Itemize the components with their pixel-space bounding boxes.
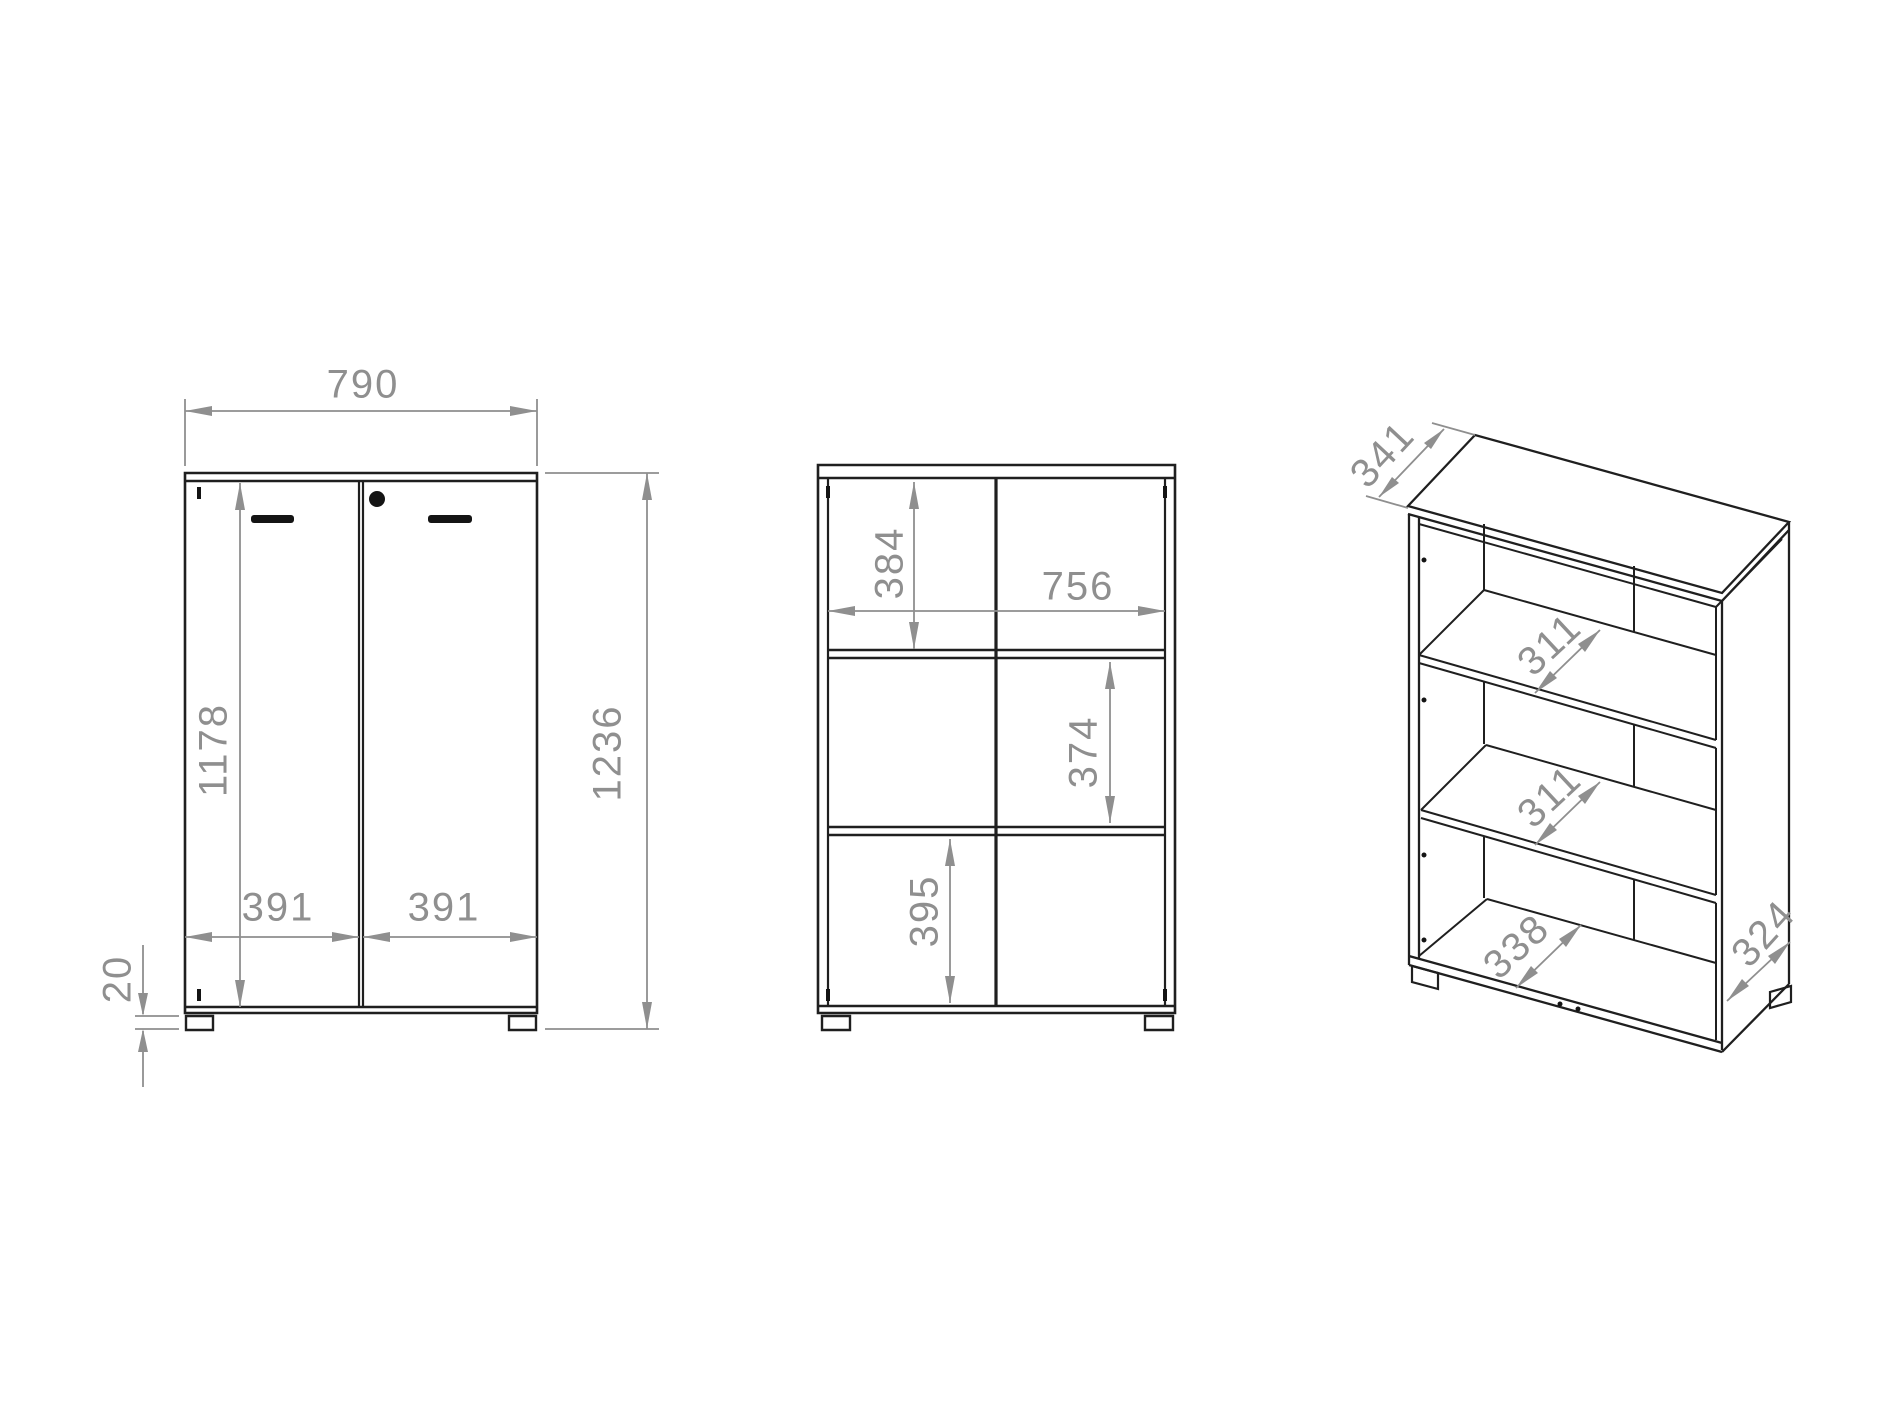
dim-front-left-door-width: 391 <box>242 886 315 931</box>
door-handle-left <box>251 515 294 523</box>
dim-lines-perspective <box>1366 423 1790 1001</box>
dim-front-door-height: 1178 <box>192 703 237 797</box>
interior-lines <box>1419 524 1782 1040</box>
dim-front-total-height: 1236 <box>586 705 631 802</box>
perspective-view <box>1366 423 1791 1052</box>
dim-front-foot-height: 20 <box>96 955 141 1004</box>
door-split-line <box>359 481 363 1007</box>
section-view-feet <box>822 1016 1173 1030</box>
dim-section-middle-compartment: 374 <box>1062 716 1107 789</box>
top-panel <box>1408 435 1789 601</box>
cabinet-outline <box>185 473 537 1013</box>
dim-front-width: 790 <box>327 363 400 408</box>
dim-front-right-door-width: 391 <box>408 886 481 931</box>
dim-section-interior-width: 756 <box>1042 565 1115 610</box>
dim-section-bottom-compartment: 395 <box>903 875 948 948</box>
door-handle-right <box>428 515 472 523</box>
lock-hole <box>369 491 385 507</box>
technical-drawing-canvas: 790 1178 1236 391 391 20 384 756 374 395… <box>0 0 1903 1427</box>
dim-section-top-compartment: 384 <box>868 527 913 600</box>
drawing-linework <box>0 0 1903 1427</box>
front-view-feet <box>186 1016 536 1030</box>
